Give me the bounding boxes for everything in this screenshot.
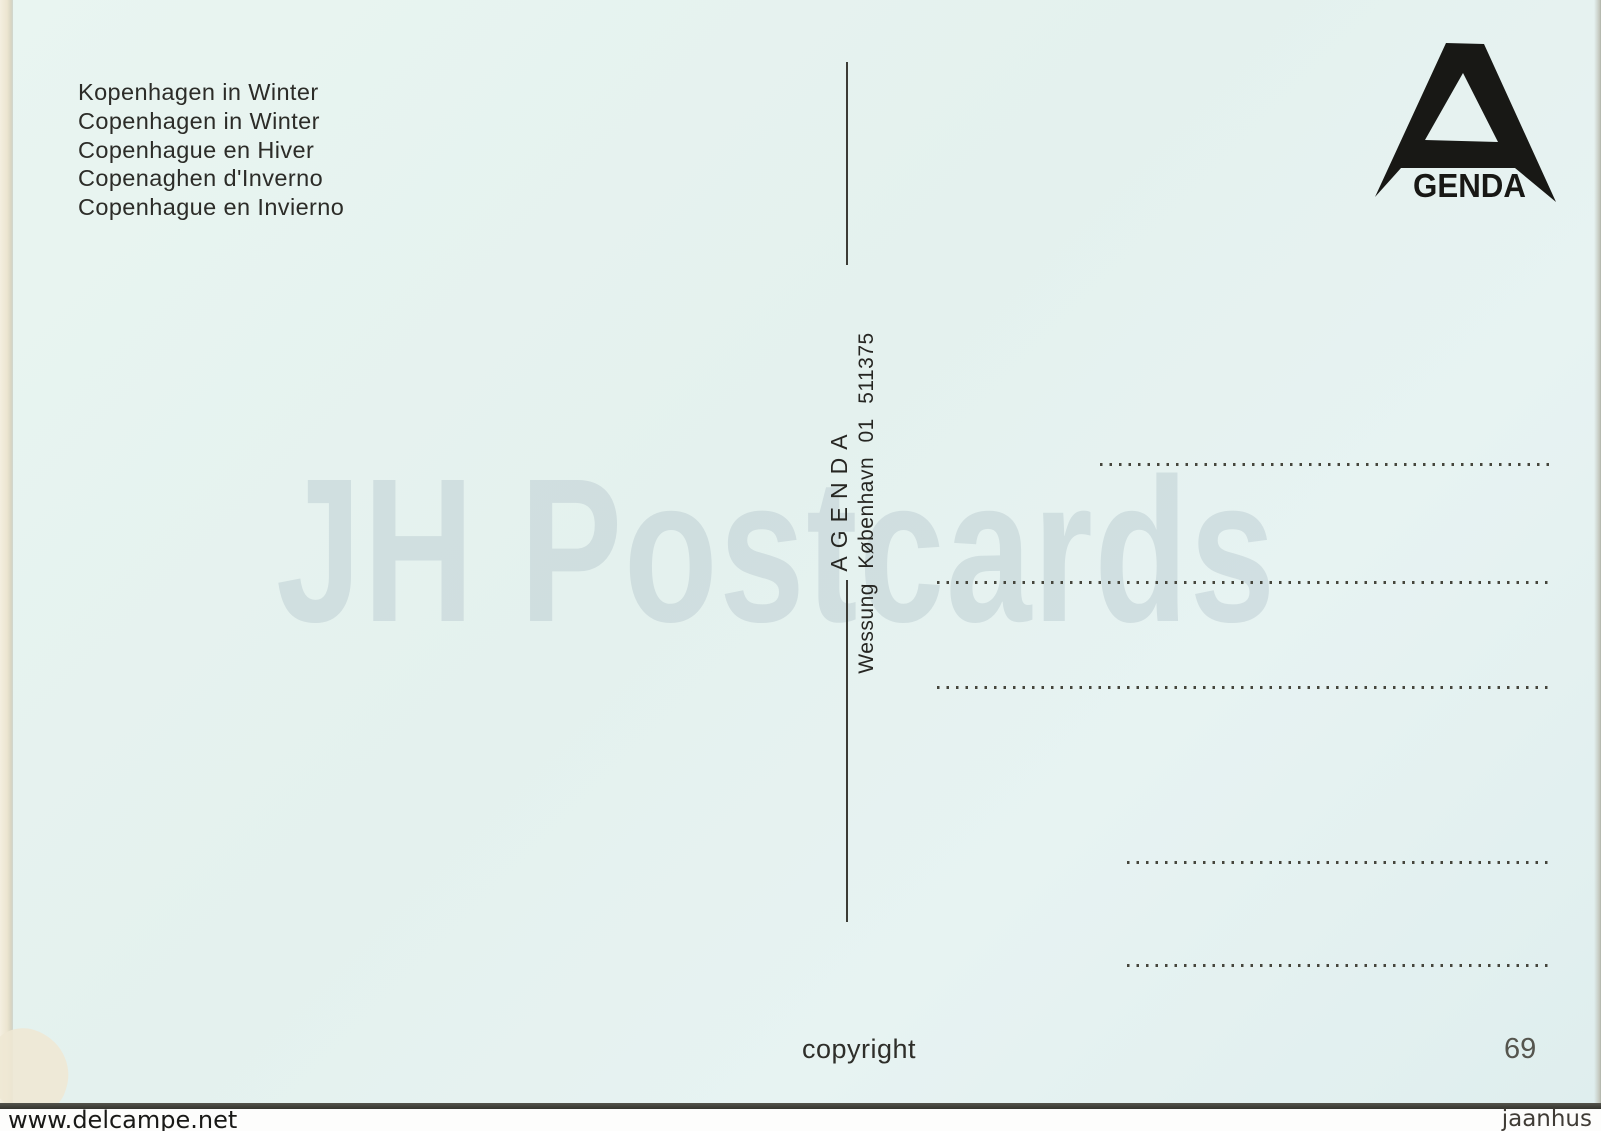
publisher-address: Wessung København 01 511375	[853, 323, 881, 683]
title-line-fr: Copenhague en Hiver	[78, 136, 344, 165]
title-line-de: Kopenhagen in Winter	[78, 78, 344, 107]
publisher-brand: AGENDA	[825, 323, 853, 683]
publisher-credit-rotated: AGENDA Wessung København 01 511375	[825, 323, 883, 683]
title-line-es: Copenhague en Invierno	[78, 193, 344, 222]
agenda-logo-text: GENDA	[1413, 167, 1526, 204]
postcard-back-photo: JH Postcards Kopenhagen in Winter Copenh…	[0, 0, 1601, 1131]
catalog-number: 69	[1504, 1033, 1536, 1066]
postcard-surface: JH Postcards Kopenhagen in Winter Copenh…	[0, 0, 1601, 1104]
divider-line-top	[846, 62, 848, 265]
address-line-2	[937, 581, 1549, 584]
agenda-logo: GENDA	[1373, 40, 1563, 210]
card-right-edge	[1594, 0, 1601, 1104]
scan-margin	[0, 1109, 1601, 1131]
watermark-jaanhus: jaanhus	[1502, 1106, 1592, 1131]
watermark-delcampe: www.delcampe.net	[8, 1106, 237, 1131]
address-line-3	[937, 686, 1549, 689]
title-block: Kopenhagen in Winter Copenhagen in Winte…	[78, 78, 344, 222]
card-left-edge	[0, 0, 13, 1104]
address-line-4	[1127, 861, 1550, 864]
address-line-1	[1100, 463, 1550, 466]
title-line-it: Copenaghen d'Inverno	[78, 164, 344, 193]
watermark-jh-postcards: JH Postcards	[276, 448, 1277, 653]
address-line-5	[1127, 964, 1550, 967]
title-line-en: Copenhagen in Winter	[78, 107, 344, 136]
copyright-label: copyright	[802, 1034, 916, 1065]
